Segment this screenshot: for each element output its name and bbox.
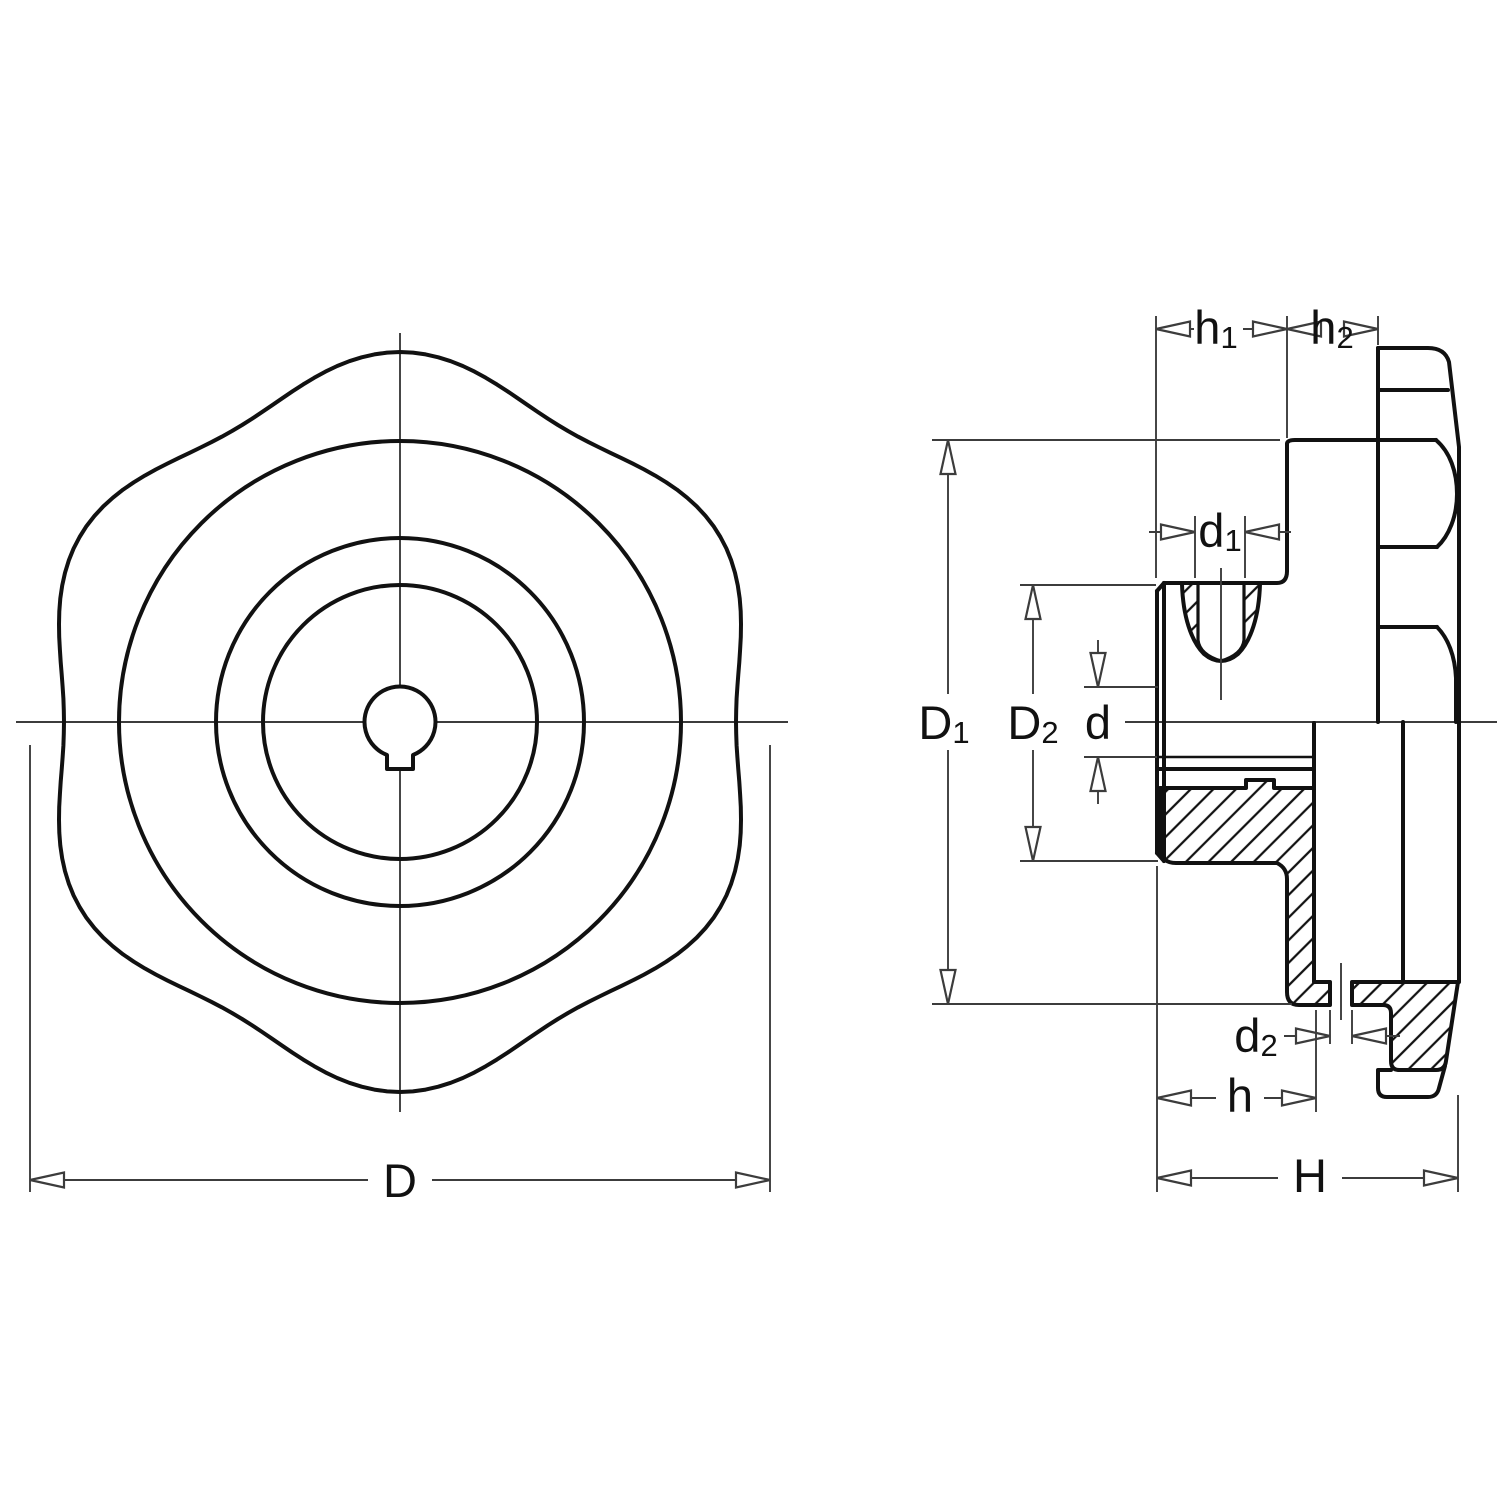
arrow-right-icon — [1253, 322, 1287, 337]
dimension-label-d1: d1 — [1198, 504, 1241, 558]
arrow-right-icon — [736, 1173, 770, 1188]
arrow-left-icon — [30, 1173, 64, 1188]
arrow-down-icon — [1026, 827, 1041, 861]
arrow-left-icon — [1156, 322, 1190, 337]
dimension-label-h1: h1 — [1194, 301, 1237, 355]
section-upper-outline — [1157, 348, 1459, 861]
arrow-right-icon — [1424, 1171, 1458, 1186]
arrow-right-icon — [1296, 1029, 1330, 1044]
dimension-label-h: h — [1227, 1069, 1253, 1122]
arrow-up-icon — [941, 440, 956, 474]
arrow-right-icon — [1161, 525, 1195, 540]
dimension-d2: d2 — [1234, 1009, 1400, 1063]
dimension-label-D2: D2 — [1007, 696, 1058, 750]
front-view: D — [16, 333, 788, 1207]
keyed-bore — [364, 686, 435, 769]
dimension-H: H — [1157, 1095, 1458, 1202]
knob-technical-drawing: D — [0, 0, 1500, 1500]
section-view: h1 h2 d1 D1 — [918, 301, 1497, 1202]
rim-lobe-section-hatch — [1352, 982, 1458, 1070]
arrow-up-icon — [1026, 585, 1041, 619]
dimension-label-d2: d2 — [1234, 1009, 1277, 1063]
arrow-down-icon — [941, 970, 956, 1004]
arrow-right-icon — [1282, 1091, 1316, 1106]
dimension-label-H: H — [1293, 1149, 1327, 1202]
arrow-left-icon — [1157, 1091, 1191, 1106]
lobe-bulge-1 — [1436, 440, 1457, 547]
dimension-label-D1: D1 — [918, 696, 969, 750]
arrow-left-icon — [1352, 1029, 1386, 1044]
dimension-label-d: d — [1085, 696, 1111, 749]
dimension-label-D: D — [383, 1154, 417, 1207]
arrow-left-icon — [1245, 525, 1279, 540]
arrow-left-icon — [1157, 1171, 1191, 1186]
flange-top-edge — [1287, 440, 1436, 444]
dimension-D2: D2 — [1007, 585, 1158, 861]
hub-top-edge — [1164, 571, 1287, 583]
dimension-d1: d1 — [1149, 504, 1291, 579]
tapped-hole-d1 — [1182, 568, 1260, 700]
dimension-label-h2: h2 — [1310, 301, 1353, 355]
arrow-up-icon — [1091, 757, 1106, 791]
arrow-down-icon — [1091, 653, 1106, 687]
hub-web-section-hatch — [1160, 780, 1330, 1005]
drawing-canvas: D — [0, 0, 1500, 1500]
lobe-bulge-2 — [1437, 627, 1456, 722]
dimension-h2: h2 — [1287, 301, 1378, 355]
